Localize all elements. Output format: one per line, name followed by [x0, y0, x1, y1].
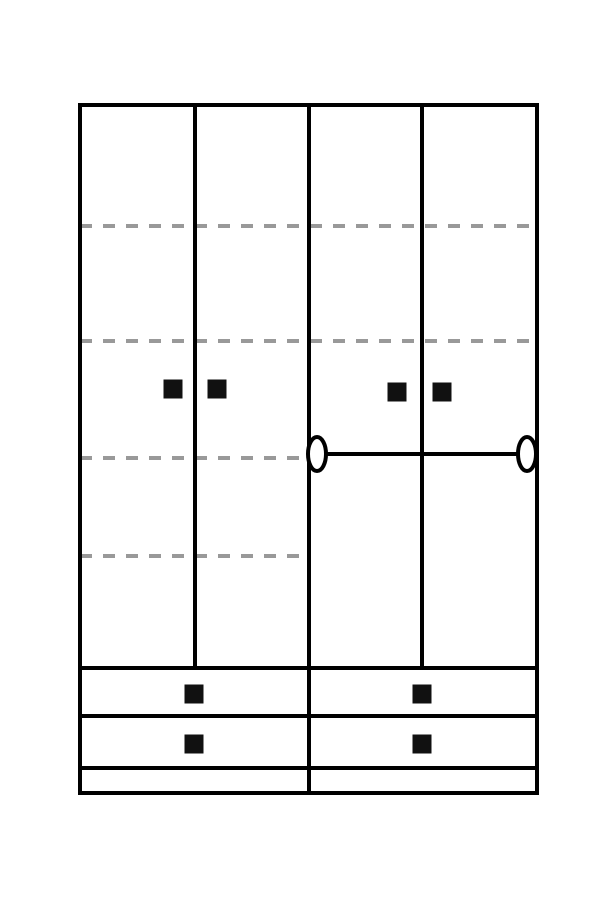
- drawer-handle: [185, 735, 204, 754]
- wardrobe-svg: [0, 0, 600, 900]
- door-handle: [388, 383, 407, 402]
- rod-end-left: [308, 437, 326, 471]
- drawer-handle: [413, 685, 432, 704]
- door-handle: [164, 380, 183, 399]
- door-handle: [208, 380, 227, 399]
- wardrobe-diagram: [0, 0, 600, 900]
- drawer-handle: [185, 685, 204, 704]
- rod-end-right: [518, 437, 536, 471]
- drawer-handle: [413, 735, 432, 754]
- door-handle: [433, 383, 452, 402]
- diagram-background: [0, 0, 600, 900]
